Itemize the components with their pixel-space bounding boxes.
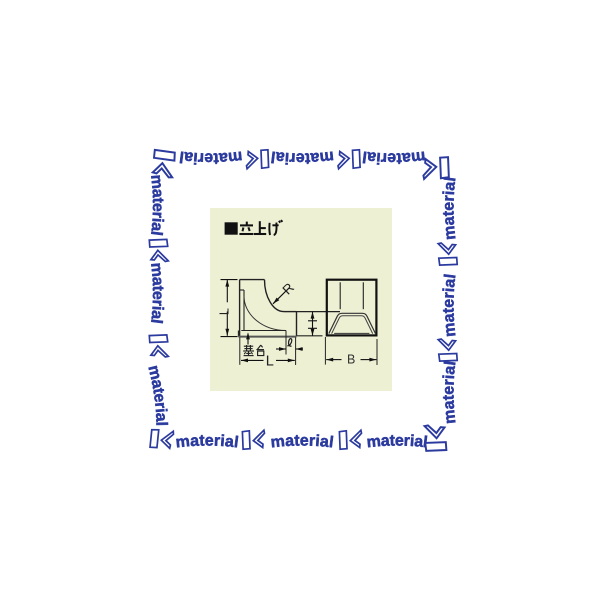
svg-text:material: material <box>440 273 459 338</box>
svg-text:material: material <box>175 432 240 451</box>
svg-text:material: material <box>147 174 166 237</box>
svg-text:L: L <box>217 308 232 315</box>
svg-text:material: material <box>440 176 459 241</box>
svg-text:material: material <box>178 147 243 166</box>
svg-text:material: material <box>144 363 171 428</box>
svg-text:B: B <box>347 352 355 366</box>
svg-text:material: material <box>366 432 429 451</box>
svg-text:L: L <box>266 353 274 369</box>
svg-text:material: material <box>270 147 335 166</box>
svg-text:material: material <box>361 147 426 166</box>
svg-text:material: material <box>440 360 459 425</box>
svg-text:material: material <box>270 432 335 451</box>
svg-text:material: material <box>147 262 166 325</box>
